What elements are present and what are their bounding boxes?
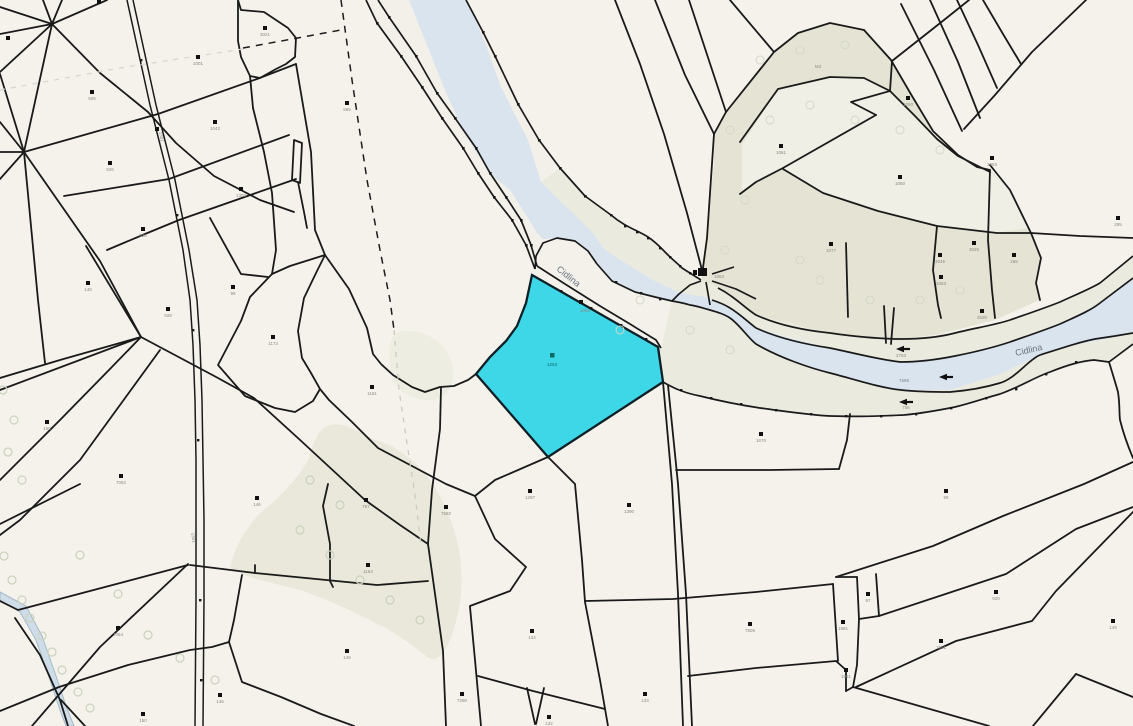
svg-text:2063: 2063: [987, 162, 998, 167]
svg-text:295: 295: [1114, 222, 1122, 227]
svg-text:7589: 7589: [899, 378, 910, 383]
svg-text:150: 150: [43, 426, 51, 431]
svg-text:1077: 1077: [826, 248, 837, 253]
svg-text:7062: 7062: [116, 480, 127, 485]
svg-text:149: 149: [343, 655, 351, 660]
svg-text:59: 59: [943, 495, 949, 500]
svg-text:150: 150: [139, 718, 147, 723]
svg-text:M3: M3: [815, 64, 822, 69]
svg-text:134: 134: [528, 635, 536, 640]
svg-text:1263: 1263: [547, 362, 558, 367]
svg-text:1172: 1172: [268, 341, 278, 346]
svg-text:757: 757: [362, 504, 370, 509]
svg-text:99: 99: [230, 291, 236, 296]
svg-text:3021: 3021: [260, 32, 271, 37]
svg-text:1670: 1670: [756, 438, 767, 443]
svg-text:1297: 1297: [525, 495, 536, 500]
svg-text:7064: 7064: [113, 632, 124, 637]
svg-text:2630: 2630: [977, 315, 988, 320]
svg-text:1060: 1060: [895, 181, 906, 186]
svg-text:3025: 3025: [969, 247, 980, 252]
svg-text:146: 146: [216, 699, 224, 704]
svg-text:925: 925: [88, 96, 96, 101]
svg-text:7692: 7692: [441, 511, 452, 516]
svg-text:1093: 1093: [903, 102, 914, 107]
svg-text:756: 756: [902, 405, 910, 410]
svg-text:1981: 1981: [838, 626, 849, 631]
svg-text:926: 926: [106, 167, 114, 172]
svg-text:1061: 1061: [776, 150, 787, 155]
svg-text:149: 149: [1109, 625, 1117, 630]
svg-text:1161: 1161: [367, 391, 377, 396]
svg-text:97: 97: [865, 598, 871, 603]
svg-text:869: 869: [343, 107, 351, 112]
svg-text:1042: 1042: [210, 126, 221, 131]
svg-text:148: 148: [84, 287, 92, 292]
svg-text:133: 133: [641, 698, 649, 703]
svg-text:1303: 1303: [236, 193, 247, 198]
svg-text:920: 920: [992, 596, 1000, 601]
svg-text:2045: 2045: [935, 259, 946, 264]
svg-text:1001: 1001: [193, 61, 204, 66]
svg-text:7290: 7290: [457, 698, 468, 703]
svg-text:1991: 1991: [936, 645, 947, 650]
svg-text:1390: 1390: [624, 509, 635, 514]
svg-text:928: 928: [164, 313, 172, 318]
svg-text:265: 265: [1010, 259, 1018, 264]
svg-text:146: 146: [253, 502, 261, 507]
svg-text:2053: 2053: [936, 281, 947, 286]
svg-text:928: 928: [139, 233, 147, 238]
svg-text:1164: 1164: [363, 569, 373, 574]
svg-text:1063: 1063: [580, 308, 591, 313]
svg-text:132: 132: [545, 721, 553, 726]
svg-text:7809: 7809: [745, 628, 756, 633]
svg-text:2753: 2753: [896, 353, 907, 358]
svg-text:1961: 1961: [841, 674, 852, 679]
svg-text:1063: 1063: [714, 274, 725, 279]
